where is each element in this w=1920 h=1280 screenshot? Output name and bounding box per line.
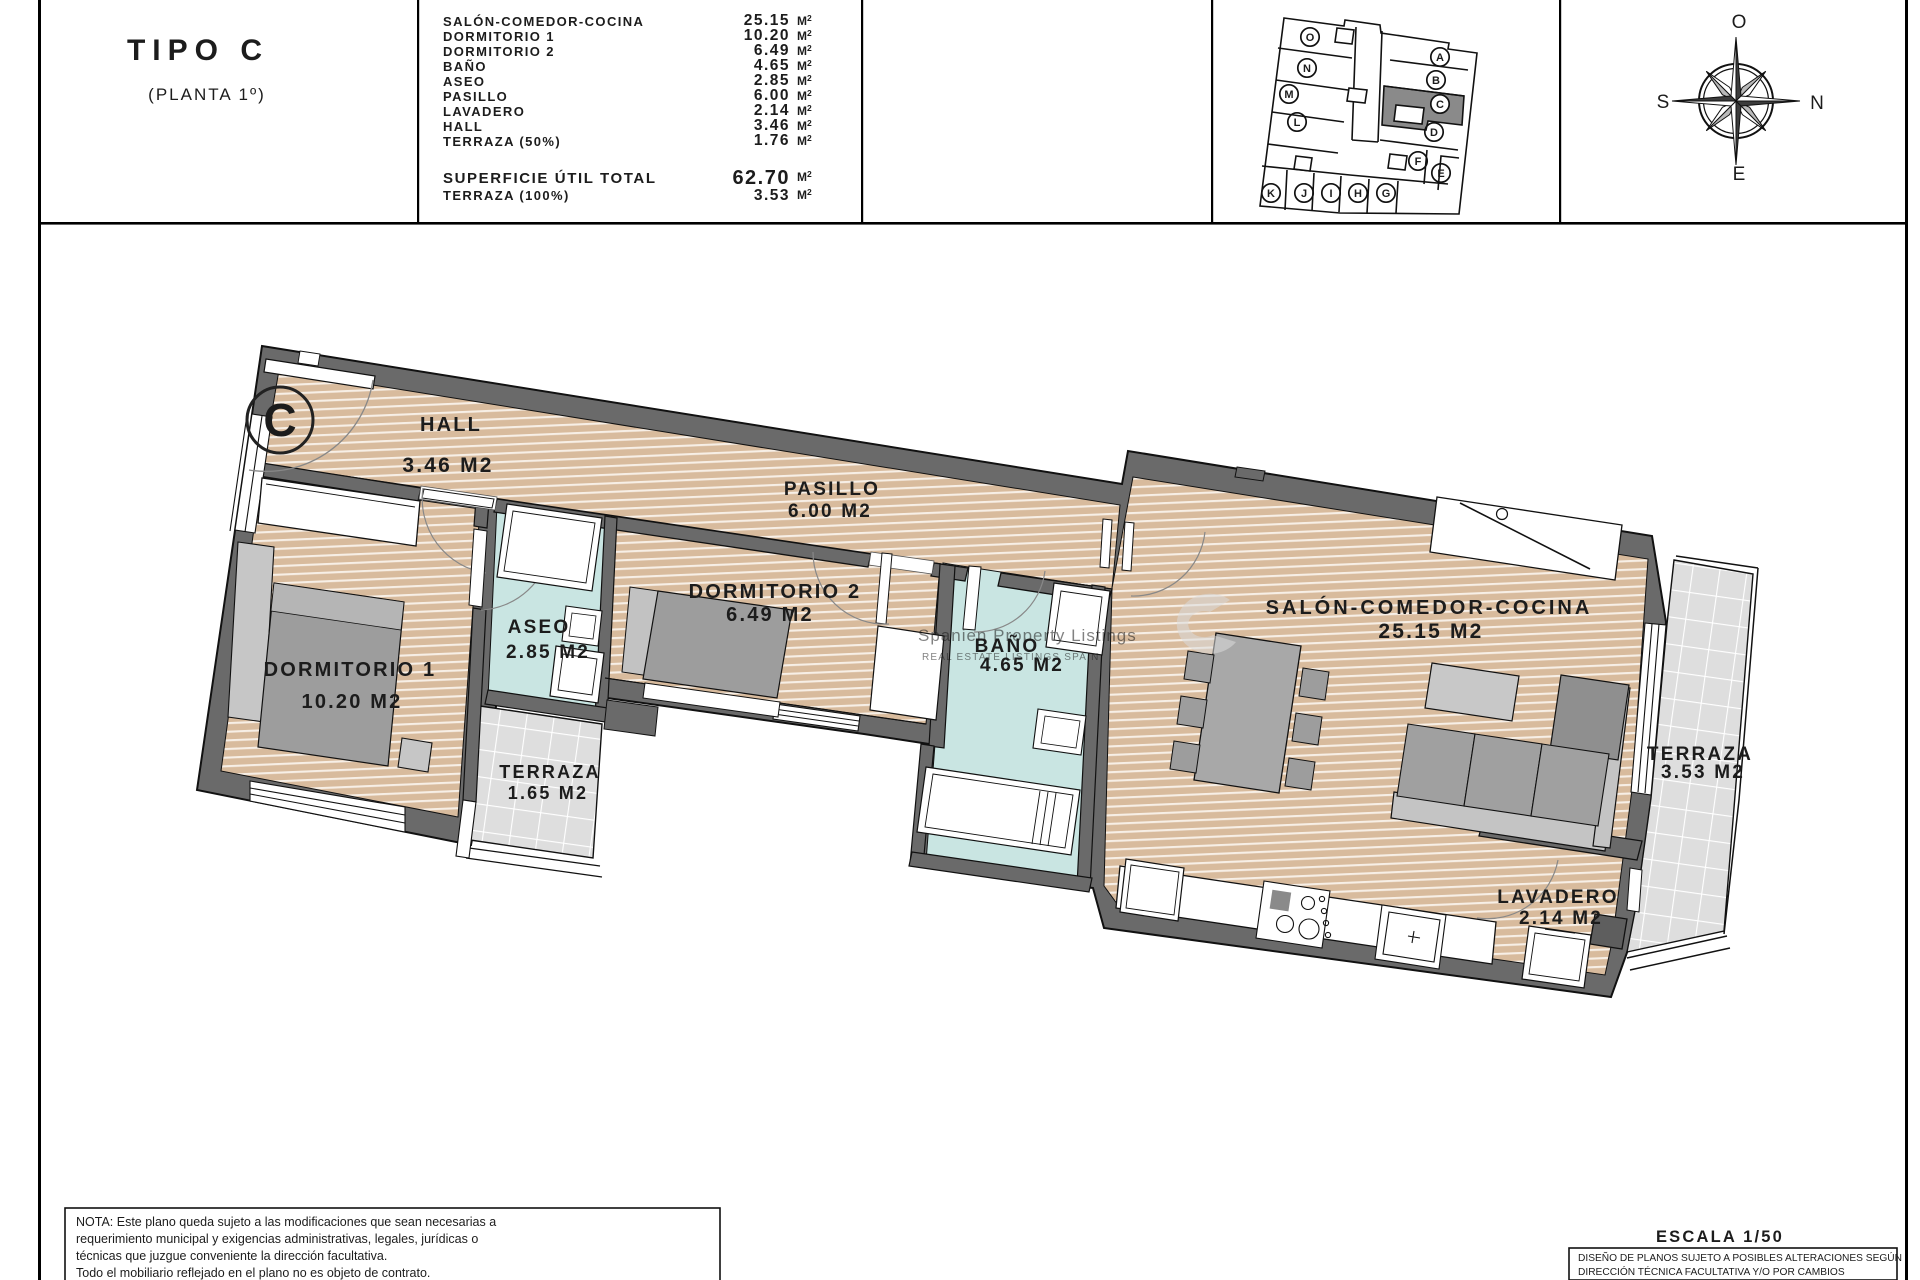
- svg-text:C: C: [1436, 99, 1444, 111]
- svg-text:LAVADERO: LAVADERO: [1497, 887, 1618, 908]
- svg-text:DORMITORIO 2: DORMITORIO 2: [689, 581, 862, 603]
- svg-text:F: F: [1415, 156, 1422, 168]
- svg-text:K: K: [1267, 188, 1275, 200]
- svg-text:3.53 M2: 3.53 M2: [1661, 762, 1745, 783]
- svg-text:TIPO C: TIPO C: [127, 34, 269, 67]
- svg-text:NOTA: Este plano queda sujeto: NOTA: Este plano queda sujeto a las modi…: [76, 1215, 496, 1229]
- svg-text:3.53: 3.53: [754, 187, 790, 204]
- svg-text:1.65 M2: 1.65 M2: [508, 783, 588, 803]
- svg-text:L: L: [1294, 117, 1301, 129]
- svg-text:PASILLO: PASILLO: [443, 89, 508, 104]
- svg-text:DORMITORIO 2: DORMITORIO 2: [443, 44, 555, 59]
- svg-text:DIRECCIÓN TÉCNICA FACULTATIVA: DIRECCIÓN TÉCNICA FACULTATIVA Y/O POR CA…: [1578, 1265, 1845, 1278]
- svg-text:2.85 M2: 2.85 M2: [506, 642, 590, 663]
- svg-text:BAÑO: BAÑO: [975, 635, 1040, 657]
- svg-text:N: N: [1303, 63, 1311, 75]
- svg-text:2.14 M2: 2.14 M2: [1519, 908, 1603, 929]
- svg-text:SALÓN-COMEDOR-COCINA: SALÓN-COMEDOR-COCINA: [443, 14, 644, 29]
- svg-text:TERRAZA (100%): TERRAZA (100%): [443, 188, 570, 203]
- svg-text:G: G: [1382, 188, 1391, 200]
- svg-text:ESCALA 1/50: ESCALA 1/50: [1656, 1228, 1784, 1246]
- svg-text:S: S: [1657, 92, 1670, 113]
- svg-text:3.46 M2: 3.46 M2: [402, 454, 493, 477]
- svg-text:E: E: [1437, 168, 1444, 180]
- svg-text:B: B: [1432, 75, 1440, 87]
- svg-text:O: O: [1306, 32, 1315, 44]
- svg-text:TERRAZA (50%): TERRAZA (50%): [443, 134, 561, 149]
- svg-text:1.76: 1.76: [754, 132, 790, 149]
- svg-text:H: H: [1354, 188, 1362, 200]
- svg-text:D: D: [1430, 127, 1438, 139]
- svg-text:25.15 M2: 25.15 M2: [1378, 620, 1483, 643]
- svg-text:10.20 M2: 10.20 M2: [302, 691, 403, 713]
- svg-text:SUPERFICIE ÚTIL TOTAL: SUPERFICIE ÚTIL TOTAL: [443, 169, 657, 187]
- svg-text:HALL: HALL: [443, 119, 483, 134]
- svg-text:TERRAZA: TERRAZA: [499, 762, 600, 782]
- svg-text:I: I: [1329, 188, 1332, 200]
- svg-text:6.00 M2: 6.00 M2: [788, 501, 872, 522]
- svg-text:HALL: HALL: [420, 414, 482, 436]
- svg-text:LAVADERO: LAVADERO: [443, 104, 525, 119]
- svg-text:DISEÑO DE PLANOS SUJETO A POSI: DISEÑO DE PLANOS SUJETO A POSIBLES ALTER…: [1578, 1251, 1902, 1264]
- svg-text:Todo el mobiliario reflejado e: Todo el mobiliario reflejado en el plano…: [76, 1266, 430, 1280]
- svg-text:N: N: [1810, 93, 1824, 114]
- svg-text:PASILLO: PASILLO: [784, 479, 880, 500]
- svg-text:C: C: [263, 394, 296, 446]
- svg-text:J: J: [1301, 188, 1307, 200]
- svg-text:6.49 M2: 6.49 M2: [726, 604, 814, 626]
- svg-text:DORMITORIO 1: DORMITORIO 1: [264, 659, 437, 681]
- svg-text:ASEO: ASEO: [508, 617, 571, 638]
- svg-text:requerimiento municipal y exig: requerimiento municipal y exigencias adm…: [76, 1232, 478, 1246]
- svg-text:M: M: [1284, 89, 1293, 101]
- svg-text:4.65 M2: 4.65 M2: [980, 655, 1064, 676]
- svg-text:DORMITORIO 1: DORMITORIO 1: [443, 29, 555, 44]
- svg-text:BAÑO: BAÑO: [443, 59, 487, 74]
- svg-text:SALÓN-COMEDOR-COCINA: SALÓN-COMEDOR-COCINA: [1266, 595, 1593, 619]
- svg-text:O: O: [1732, 12, 1747, 33]
- svg-text:A: A: [1436, 52, 1444, 64]
- svg-text:E: E: [1733, 164, 1746, 185]
- svg-text:ASEO: ASEO: [443, 74, 485, 89]
- svg-text:técnicas que juzgue convenient: técnicas que juzgue conveniente la direc…: [76, 1249, 387, 1263]
- svg-text:(PLANTA 1º): (PLANTA 1º): [148, 85, 266, 104]
- svg-text:62.70: 62.70: [732, 167, 790, 189]
